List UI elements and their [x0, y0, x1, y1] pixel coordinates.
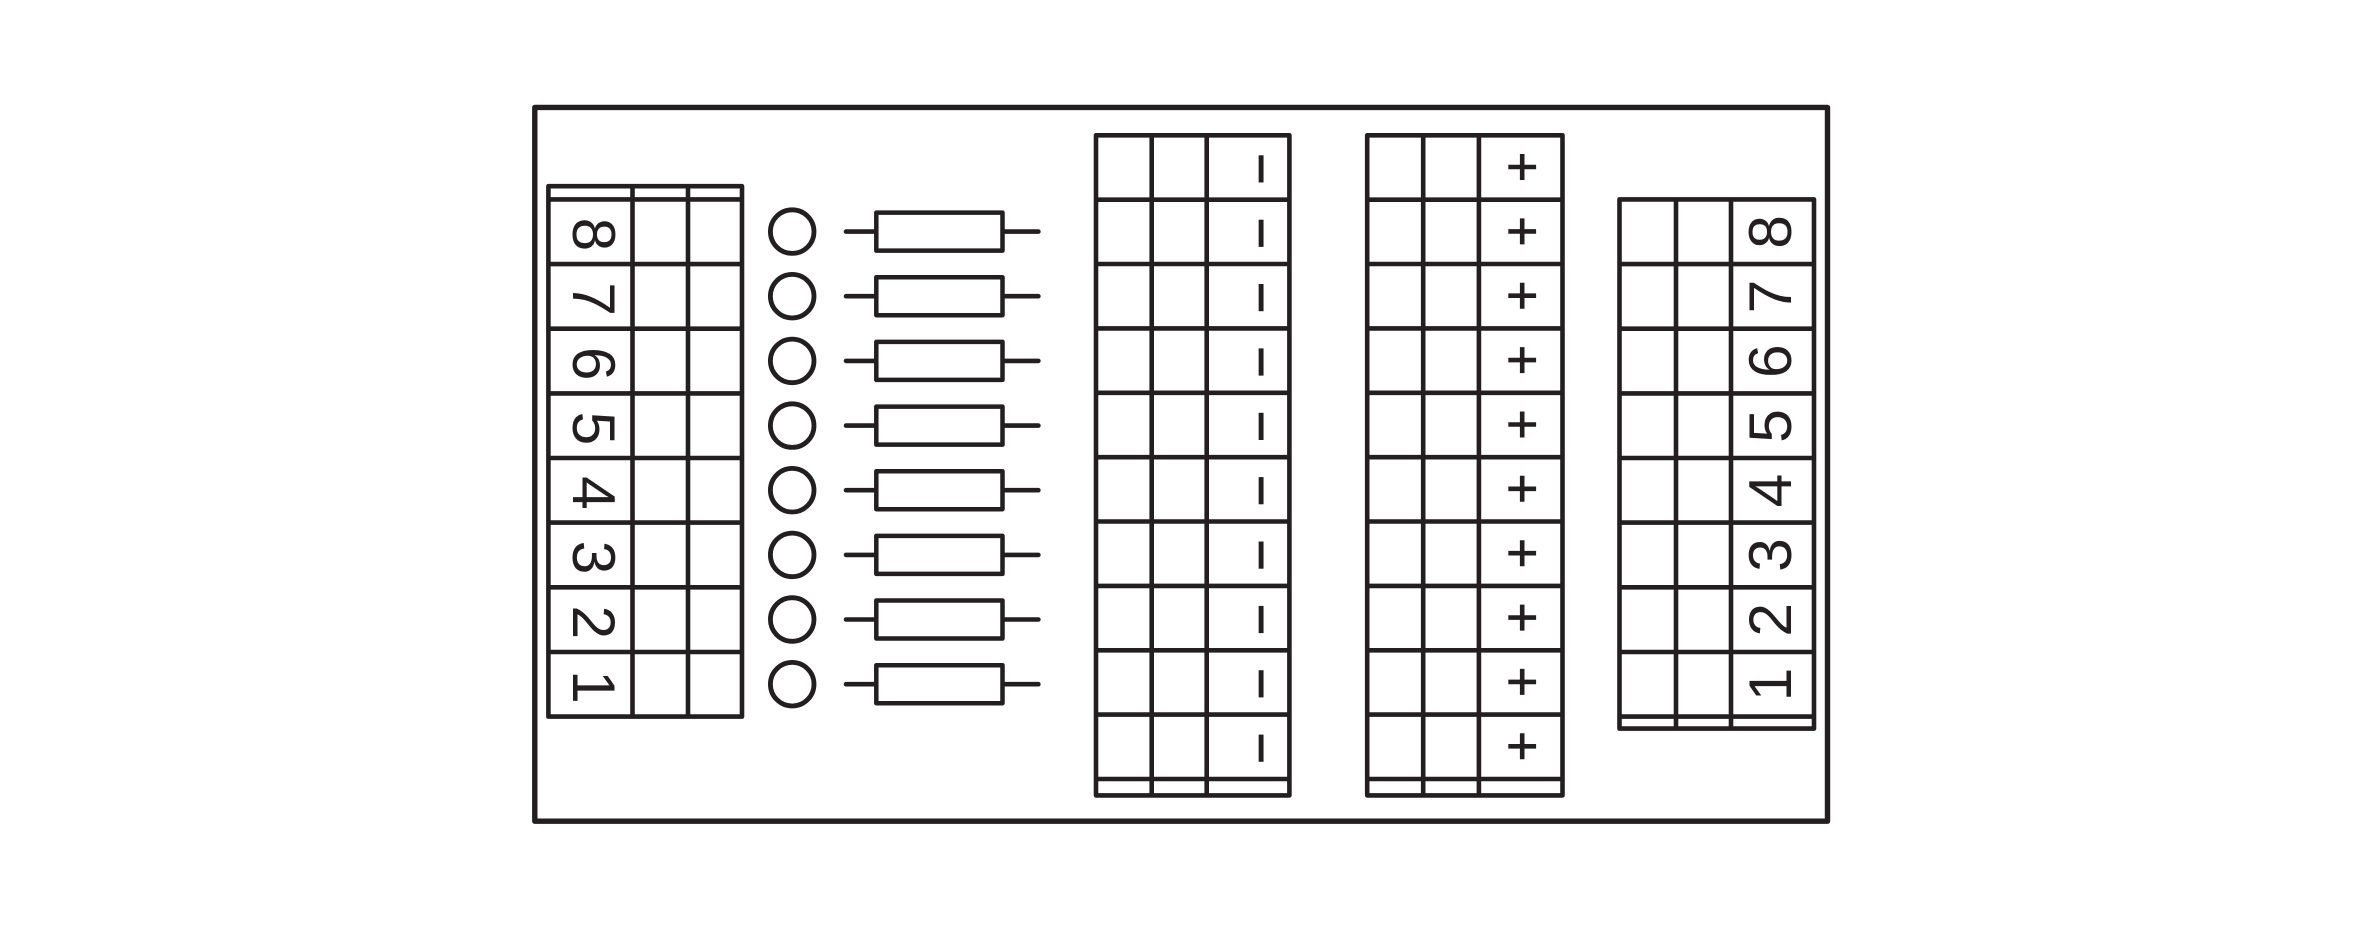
svg-text:6: 6: [560, 347, 628, 381]
svg-text:6: 6: [1736, 344, 1804, 378]
svg-text:5: 5: [1736, 409, 1804, 443]
svg-text:7: 7: [1736, 280, 1804, 314]
svg-text:2: 2: [1736, 603, 1804, 637]
svg-text:4: 4: [1736, 474, 1804, 508]
svg-text:1: 1: [1736, 668, 1804, 702]
svg-text:5: 5: [560, 412, 628, 446]
svg-text:8: 8: [560, 218, 628, 252]
svg-text:7: 7: [560, 282, 628, 316]
svg-text:8: 8: [1736, 215, 1804, 249]
svg-text:3: 3: [560, 541, 628, 575]
svg-text:1: 1: [560, 670, 628, 704]
svg-text:4: 4: [560, 476, 628, 510]
svg-text:2: 2: [560, 605, 628, 639]
svg-text:3: 3: [1736, 538, 1804, 572]
